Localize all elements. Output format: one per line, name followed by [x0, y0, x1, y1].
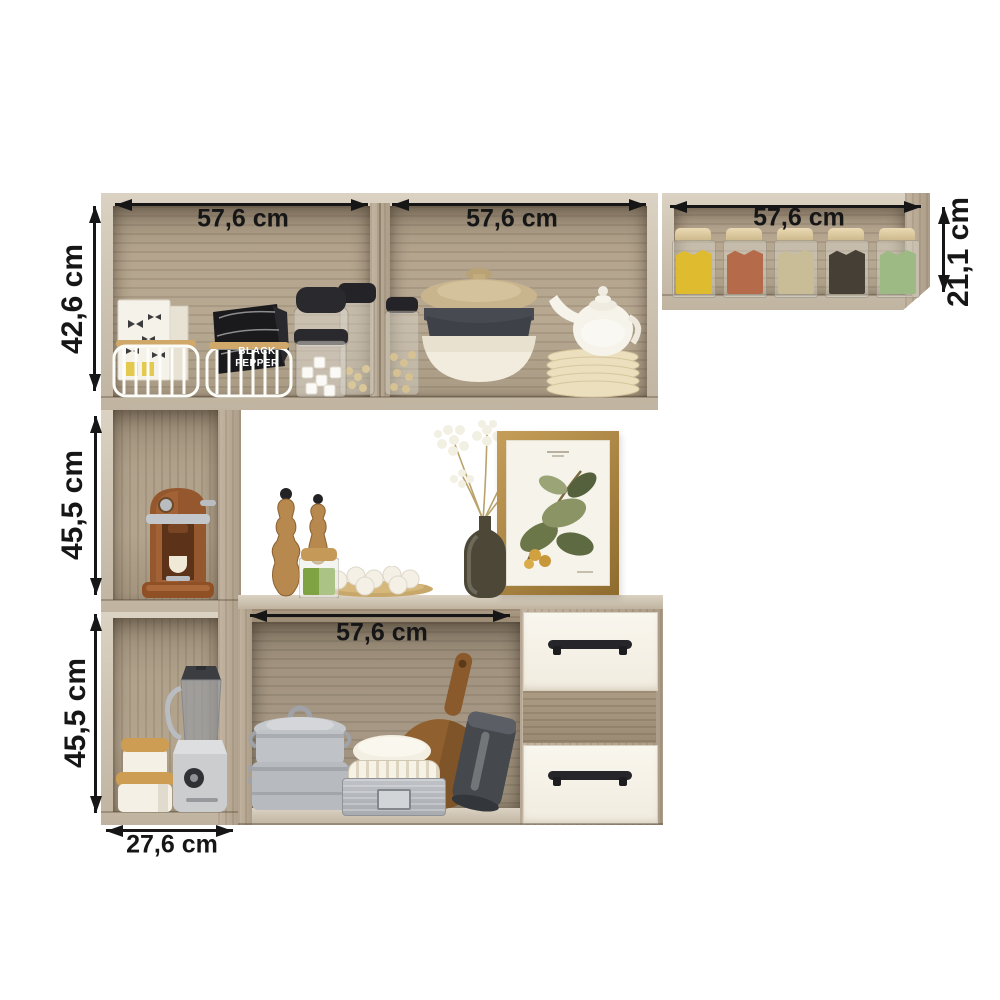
blender	[164, 666, 240, 812]
spice-jar-dark-seeds	[825, 228, 867, 296]
dark-roasting-pan	[452, 710, 516, 814]
jar-glass	[723, 240, 767, 298]
jar-fill	[829, 249, 865, 294]
drawer-bottom-handle[interactable]	[548, 771, 632, 780]
jar-glass	[774, 240, 818, 298]
spice-jar-yellow	[672, 228, 714, 296]
dim-arrow-middle-left-height	[94, 416, 97, 595]
jar-pistachios	[385, 297, 419, 397]
jar-fill	[778, 249, 814, 294]
green-tea-jar	[299, 548, 339, 598]
box-label-plate	[377, 789, 411, 810]
botanical-framed-print	[497, 431, 619, 595]
teapot-on-plates	[541, 283, 645, 398]
dim-label-bottom-left-width: 27,6 cm	[126, 833, 218, 858]
drawer-top-handle[interactable]	[548, 640, 632, 649]
dim-label-top-left-width: 57,6 cm	[197, 207, 289, 232]
dim-label-upper-left-height: 42,6 cm	[58, 244, 88, 354]
dim-label-niche-width: 57,6 cm	[336, 621, 428, 646]
dim-arrow-upper-left-height	[93, 206, 96, 391]
botanical-art	[507, 441, 609, 585]
middle-left-cabinet-side	[218, 410, 241, 612]
jar-fill	[727, 249, 763, 294]
glass-jars-sugar	[294, 283, 378, 398]
metal-storage-box	[342, 778, 446, 816]
jar-glass	[672, 240, 716, 298]
dim-label-bottom-left-height: 45,5 cm	[61, 658, 91, 768]
pot-and-bowls-stack	[418, 264, 540, 398]
coffee-machine	[136, 476, 220, 600]
dim-label-top-right-width: 57,6 cm	[753, 206, 845, 231]
dim-label-middle-left-height: 45,5 cm	[58, 450, 88, 560]
jar-fill	[880, 249, 916, 294]
spice-jar-red-lentils	[723, 228, 765, 296]
spice-jar-grains	[774, 228, 816, 296]
base-bottom-edge	[238, 823, 663, 825]
spice-jar-green	[876, 228, 918, 296]
dim-arrow-bottom-left-height	[94, 614, 97, 813]
kitchen-cabinet-dimension-image: BLACK PEPPER	[0, 0, 1000, 1000]
drawer-top[interactable]	[523, 612, 658, 691]
dim-label-right-shelf-height: 21,1 cm	[944, 197, 974, 307]
drawer-bottom[interactable]	[523, 745, 658, 824]
divider-seam	[379, 203, 381, 397]
wire-basket-pasta	[112, 298, 202, 400]
pepper-bag-label: BLACK PEPPER	[224, 346, 290, 370]
drawer-middle-wood[interactable]	[523, 691, 656, 743]
jar-glass	[876, 240, 920, 298]
frame-mat	[506, 440, 610, 586]
jar-glass	[825, 240, 869, 298]
pepper-mill-tall	[269, 488, 303, 598]
dim-label-top-middle-width: 57,6 cm	[466, 207, 558, 232]
stacked-metal-pots	[248, 704, 352, 812]
jar-fill	[676, 249, 712, 294]
dim-arrow-niche-width	[250, 614, 510, 617]
dark-glass-vase	[464, 516, 506, 598]
